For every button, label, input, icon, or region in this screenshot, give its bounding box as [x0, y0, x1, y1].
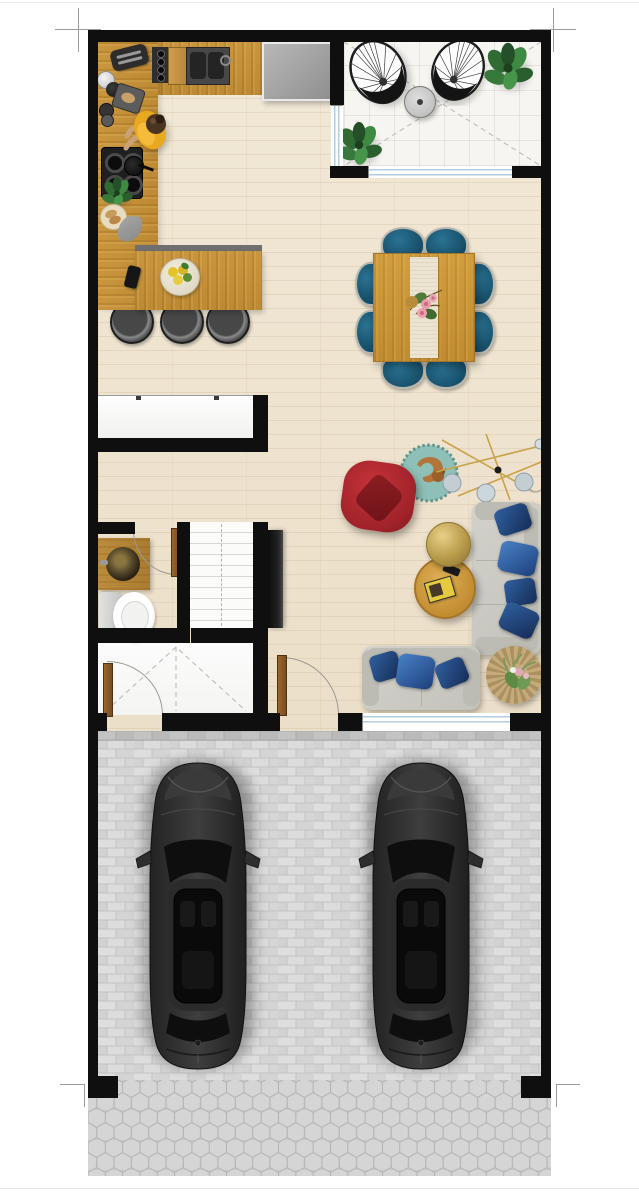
espresso-cup [101, 114, 114, 127]
stairs-centerline [221, 524, 223, 626]
person-cooking [122, 98, 180, 160]
magazine-photo [429, 583, 444, 598]
knob [157, 58, 165, 66]
trim-mark-bl [60, 1084, 84, 1085]
sheet-edge-top [0, 2, 639, 3]
trim-mark-bl [84, 1084, 85, 1107]
table-hub [417, 99, 423, 105]
balcony-side-table [404, 86, 436, 118]
pillow [395, 653, 436, 691]
trim-mark-tr [553, 8, 554, 52]
wall-stairs-bottom [191, 628, 268, 643]
red-armchair [340, 460, 417, 533]
wall-bath-bottom [88, 628, 179, 643]
knob [157, 66, 165, 74]
fruit [173, 275, 183, 285]
storage-door-leaf [103, 663, 113, 717]
wall-right [541, 30, 551, 1078]
wall-bath-top [88, 522, 135, 534]
wall-balcony-left [330, 42, 344, 105]
knob [157, 74, 165, 82]
coffee-table-gold [426, 522, 471, 567]
faucet [100, 560, 108, 565]
wardrobe [98, 395, 253, 439]
garage-cars [98, 731, 541, 1080]
wall-garage-a [88, 713, 107, 731]
balcony-plant [478, 38, 538, 98]
balcony-sliding-door [368, 166, 514, 178]
garage-door-leaf [277, 655, 287, 716]
basket-plant [492, 650, 542, 702]
wood-board [168, 47, 188, 85]
faucet [220, 55, 231, 66]
vessel-sink [106, 547, 140, 581]
sheet-edge-bottom [0, 1188, 639, 1189]
staircase [190, 522, 253, 628]
oven-control-strip [152, 47, 168, 83]
living-window [362, 713, 512, 731]
knob [157, 50, 165, 58]
trim-mark-tl [78, 8, 79, 52]
car [136, 761, 260, 1069]
wardrobe-handle [136, 396, 141, 400]
wall-mid [88, 438, 268, 452]
fruit [183, 273, 192, 282]
fridge [262, 42, 332, 101]
wall-tv [268, 530, 283, 628]
wall-garage-c [338, 713, 362, 731]
wall-balcony-bottom [512, 166, 541, 178]
wall-balcony-bottom [330, 166, 368, 178]
trim-mark-br [556, 1084, 557, 1107]
wall-top [88, 30, 551, 42]
trim-mark-br [556, 1084, 580, 1085]
flower-centerpiece [400, 280, 448, 326]
fruit-bowl [160, 258, 200, 296]
wall-bath-stairs [177, 522, 190, 643]
wall-garage-d [510, 713, 551, 731]
balcony-window [331, 105, 343, 168]
magazines [424, 576, 457, 604]
wall-garage-b [162, 713, 280, 731]
floor-plan-sheet [0, 0, 639, 1200]
wall-wardrobe-side [253, 395, 268, 438]
car [359, 761, 483, 1069]
wall-left [88, 30, 98, 1078]
kitchen-sink [186, 47, 230, 85]
driveway-apron [88, 1080, 551, 1176]
wardrobe-handle [214, 396, 219, 400]
sink-basin [190, 52, 206, 79]
wall-storage-right [253, 643, 268, 715]
